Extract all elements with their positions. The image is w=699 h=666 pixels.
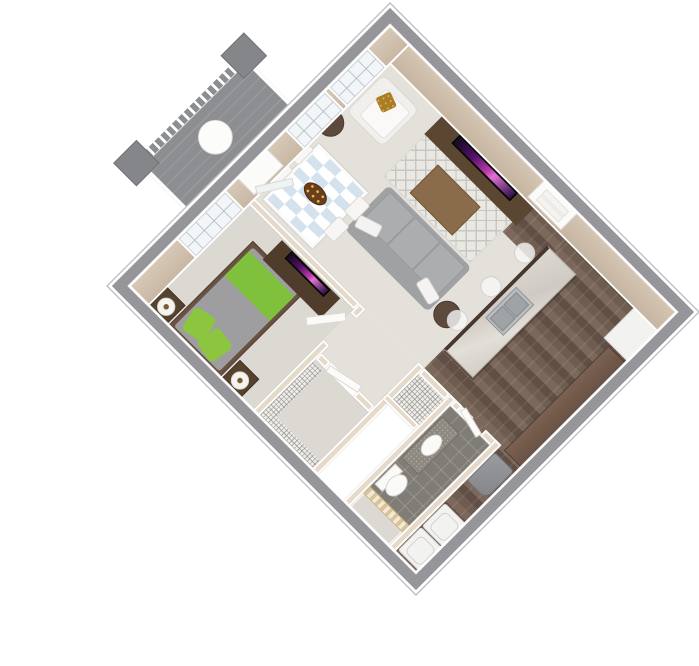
floor-plan-render: [0, 0, 699, 666]
table-lamp: [227, 368, 253, 394]
apartment-unit: [112, 8, 694, 590]
dryer-lid: [404, 535, 436, 567]
